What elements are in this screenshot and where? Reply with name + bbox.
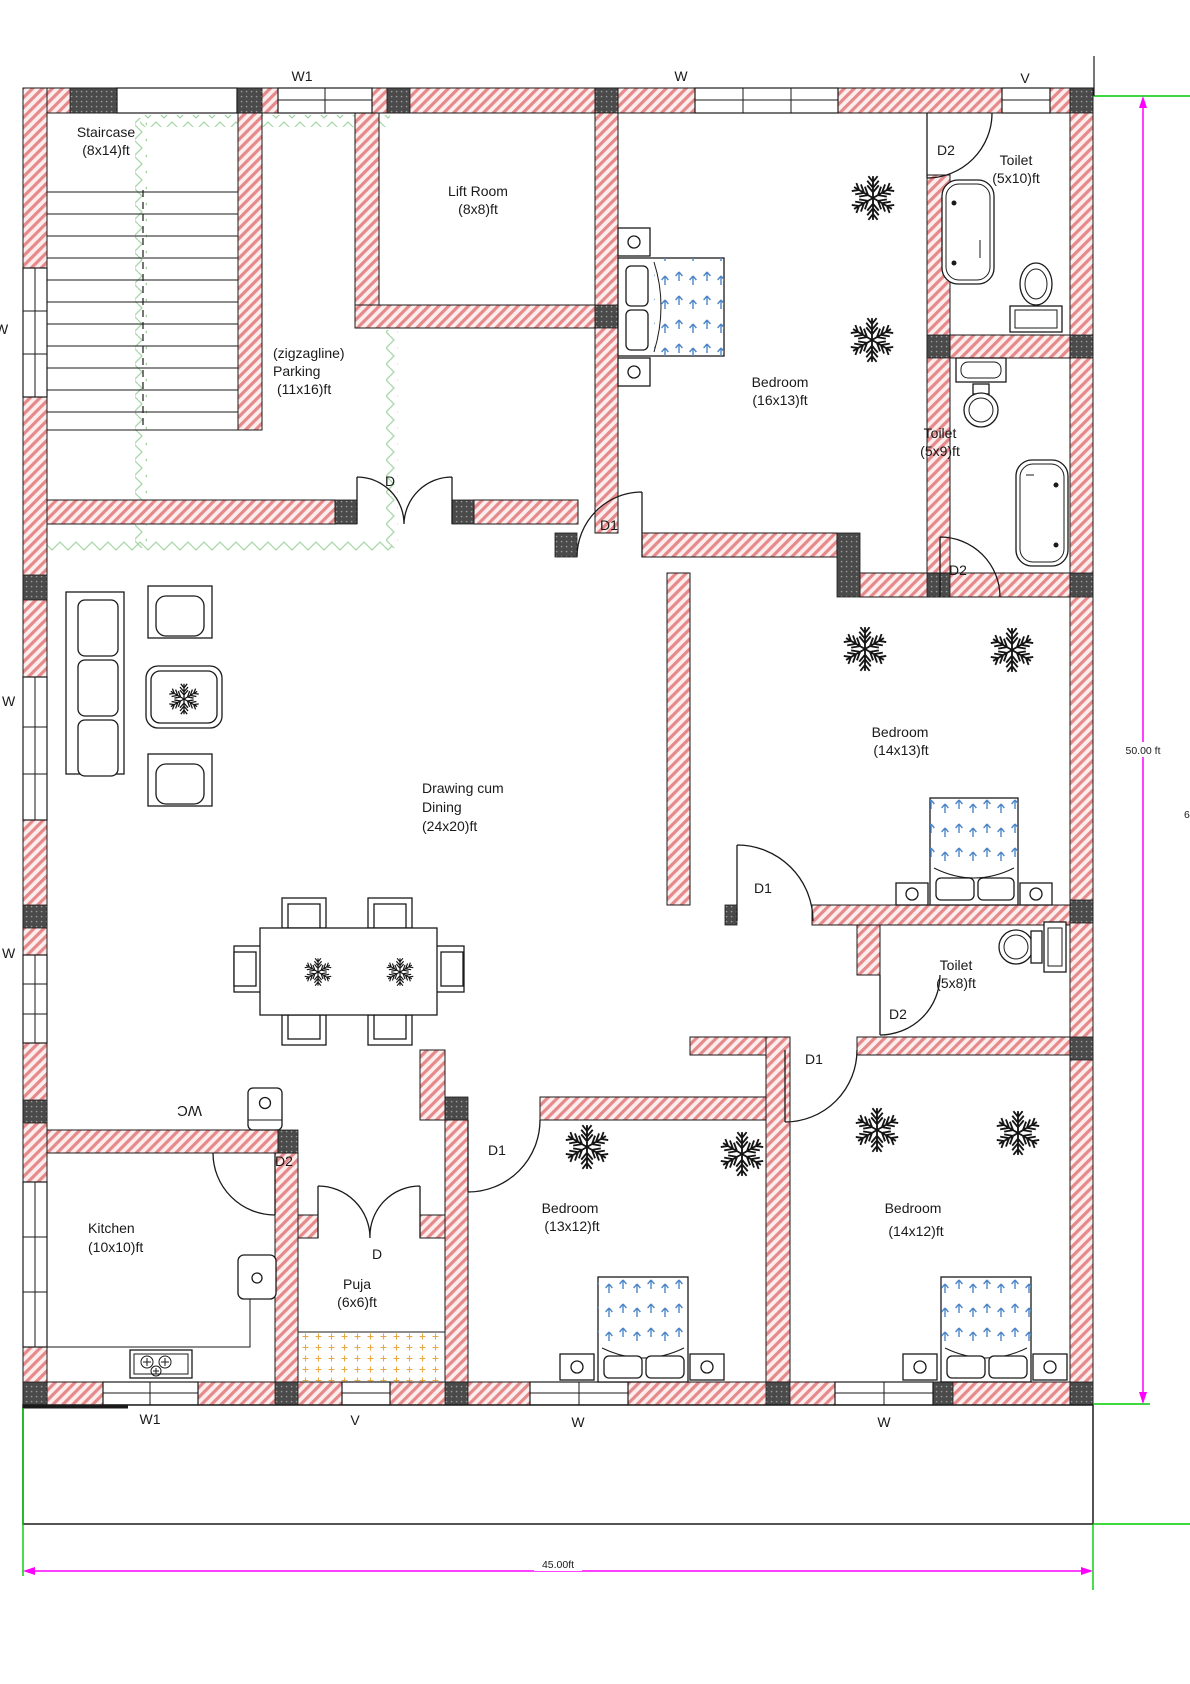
- bedroom2-size: (14x13)ft: [873, 742, 928, 758]
- wc-toilet: [999, 930, 1042, 964]
- plant-icon: [850, 318, 894, 362]
- stove: [130, 1350, 192, 1378]
- window-w-bottom-1: [530, 1382, 628, 1405]
- door-label-d2-toilet2: D2: [949, 562, 967, 578]
- toilet3-label: Toilet: [940, 957, 973, 973]
- window-label-w-bottom1: W: [571, 1414, 585, 1430]
- window-v-top: [1002, 88, 1050, 113]
- wc-toilet: [964, 384, 998, 427]
- coffee-table: [146, 666, 222, 728]
- window-v-bottom: [342, 1382, 390, 1405]
- kitchen-label: Kitchen: [88, 1220, 135, 1236]
- bedroom1-label: Bedroom: [752, 374, 809, 390]
- bedroom4-label: Bedroom: [885, 1200, 942, 1216]
- lift-room-label: Lift Room: [448, 183, 508, 199]
- washbasin: [1044, 922, 1066, 972]
- setback-outline: [23, 1405, 1093, 1524]
- window-w-bottom-2: [835, 1382, 933, 1405]
- height-dimension: 50.00 ft: [1125, 745, 1160, 757]
- kitchen-wash-fixture: [238, 1255, 276, 1299]
- plant-icon: [720, 1132, 764, 1176]
- plant-icon: [990, 628, 1034, 672]
- window-w1-top: [278, 88, 372, 113]
- bedroom3-label: Bedroom: [542, 1200, 599, 1216]
- washbasin: [956, 358, 1006, 382]
- door-puja-double: [318, 1186, 420, 1238]
- toilet2-label: Toilet: [924, 425, 957, 441]
- width-dimension: 45.00ft: [542, 1559, 574, 1571]
- plant-icon: [855, 1108, 899, 1152]
- window-label-w-bottom2: W: [877, 1414, 891, 1430]
- parking-note: (zigzagline): [273, 345, 345, 361]
- window-label-w1-top: W1: [292, 68, 313, 84]
- door-label-d-puja: D: [372, 1246, 382, 1262]
- window-label-w1-bottom: W1: [140, 1411, 161, 1427]
- parking-size: (11x16)ft: [277, 381, 331, 397]
- floor-plan-page: 50.00 ft 45.00ft 6 Staircase (8x14)ft (z…: [0, 0, 1190, 1684]
- door-label-d1-bedroom3: D1: [488, 1142, 506, 1158]
- window-label-w-left3: W: [2, 945, 16, 961]
- window-label-w-top: W: [674, 68, 688, 84]
- plant-icon: [565, 1125, 609, 1169]
- toilet2-size: (5x9)ft: [920, 443, 960, 459]
- window-label-w-left1: W: [0, 321, 9, 337]
- double-bed: [560, 1277, 724, 1382]
- toilet1-size: (5x10)ft: [992, 170, 1040, 186]
- plant-icon: [996, 1111, 1040, 1155]
- toilet1-label: Toilet: [1000, 152, 1033, 168]
- floor-plan: 50.00 ft 45.00ft 6 Staircase (8x14)ft (z…: [0, 0, 1190, 1684]
- bedroom2-label: Bedroom: [872, 724, 929, 740]
- plant-icon: [851, 176, 895, 220]
- toilet3-size: (5x8)ft: [936, 975, 976, 991]
- drawing-line1: Drawing cum: [422, 780, 504, 796]
- door-label-d-main: D: [385, 473, 395, 489]
- armchair: [148, 754, 212, 806]
- plant-icon: [843, 627, 887, 671]
- door-main-double: [357, 477, 452, 524]
- window-w-left-1: [23, 268, 47, 397]
- lift-room-size: (8x8)ft: [458, 201, 498, 217]
- door-label-d1-bedroom4: D1: [805, 1051, 823, 1067]
- staircase-label: Staircase: [77, 124, 136, 140]
- window-w-left-3: [23, 955, 47, 1043]
- armchair: [148, 586, 212, 638]
- door-kitchen: [213, 1153, 275, 1215]
- window-label-v-top: V: [1020, 70, 1030, 86]
- window-w-left-4: [23, 1182, 47, 1347]
- door-label-d1-bedroom2: D1: [754, 880, 772, 896]
- parking-label: Parking: [273, 363, 320, 379]
- door-label-d2-kitchen: D2: [275, 1153, 293, 1169]
- kitchen-size: (10x10)ft: [88, 1239, 143, 1255]
- door-toilet3: [880, 975, 940, 1035]
- drawing-line2: Dining: [422, 799, 462, 815]
- drawing-size: (24x20)ft: [422, 818, 477, 834]
- stairs: [47, 190, 238, 430]
- zigzag-boundary: [47, 115, 398, 552]
- sofa: [66, 592, 124, 776]
- bedroom3-size: (13x12)ft: [544, 1218, 599, 1234]
- window-w-left-2: [23, 677, 47, 820]
- window-w-top: [695, 88, 838, 113]
- bedroom1-size: (16x13)ft: [752, 392, 807, 408]
- bathtub: [942, 180, 994, 284]
- kitchen-sink: [248, 1088, 282, 1130]
- kitchen-counter: [47, 1298, 250, 1347]
- door-label-d2-toilet1: D2: [937, 142, 955, 158]
- staircase-size: (8x14)ft: [82, 142, 130, 158]
- window-label-v-bottom: V: [350, 1412, 360, 1428]
- bedroom4-size: (14x12)ft: [888, 1223, 943, 1239]
- puja-label: Puja: [343, 1276, 371, 1292]
- door-label-d2-toilet3: D2: [889, 1006, 907, 1022]
- edge-partial-text: 6: [1184, 809, 1190, 821]
- bathtub: [1016, 460, 1068, 566]
- top-opening: [117, 88, 237, 113]
- door-label-d1-bedroom1: D1: [600, 517, 618, 533]
- double-bed: [618, 228, 724, 386]
- double-bed: [896, 798, 1052, 905]
- window-w1-bottom: [103, 1382, 198, 1405]
- puja-size: (6x6)ft: [337, 1294, 377, 1310]
- door-bedroom2: [737, 845, 813, 921]
- window-label-w-left2: W: [2, 693, 16, 709]
- puja-mat: [298, 1332, 445, 1382]
- wc-label: WC: [177, 1102, 202, 1119]
- wc-toilet: [1010, 263, 1062, 332]
- dining-table-set: [234, 898, 464, 1045]
- double-bed: [903, 1277, 1067, 1382]
